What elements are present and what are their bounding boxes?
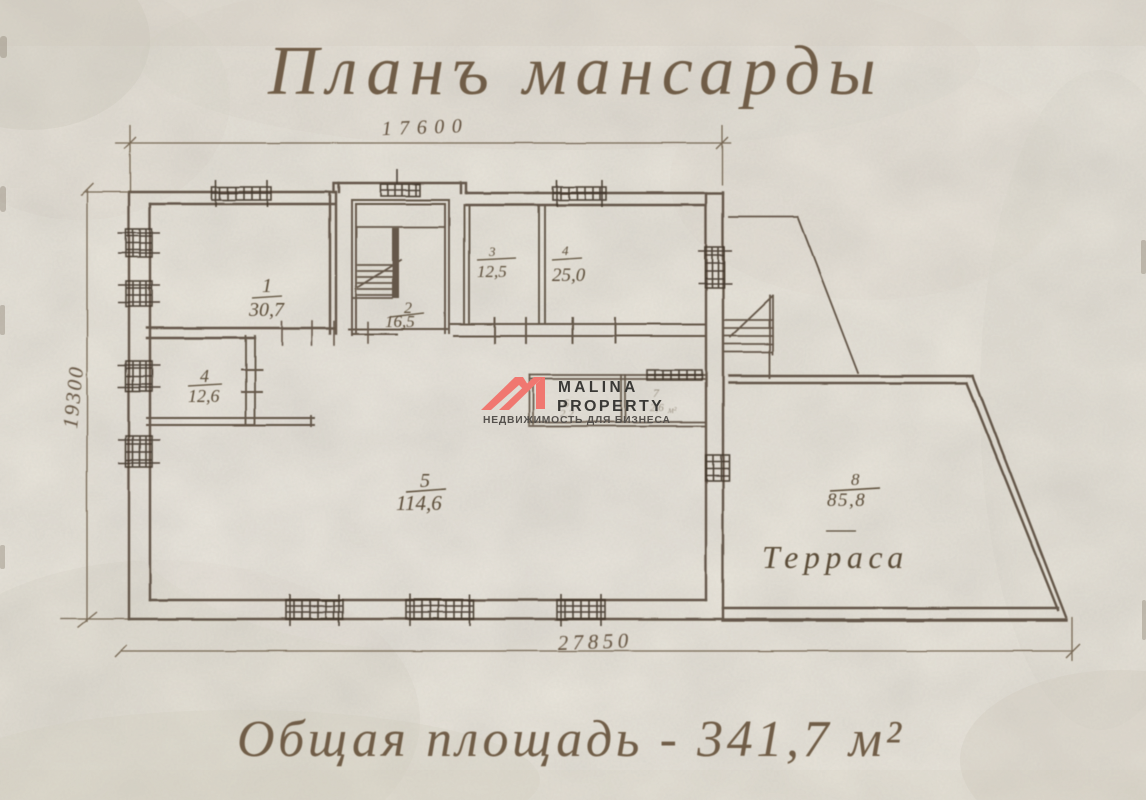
svg-text:1: 1 xyxy=(262,275,272,297)
svg-text:16,5: 16,5 xyxy=(385,312,415,331)
svg-text:85,8: 85,8 xyxy=(827,490,866,511)
svg-text:8: 8 xyxy=(851,470,860,489)
svg-text:12,5: 12,5 xyxy=(477,262,507,281)
svg-text:114,6: 114,6 xyxy=(396,491,442,515)
svg-text:MALINA: MALINA xyxy=(558,379,639,396)
svg-text:м²: м² xyxy=(667,405,677,415)
svg-text:4: 4 xyxy=(200,366,209,386)
svg-text:Планъ мансарды: Планъ мансарды xyxy=(267,33,884,110)
svg-text:27850: 27850 xyxy=(557,628,633,655)
svg-text:4: 4 xyxy=(562,243,569,258)
svg-text:НЕДВИЖИМОСТЬ ДЛЯ БИЗНЕСА: НЕДВИЖИМОСТЬ ДЛЯ БИЗНЕСА xyxy=(483,415,671,426)
svg-text:5: 5 xyxy=(420,470,430,492)
svg-text:PROPERTY: PROPERTY xyxy=(557,398,664,415)
svg-text:Терраса: Терраса xyxy=(762,539,909,575)
svg-text:12,6: 12,6 xyxy=(188,386,220,406)
svg-text:Общая площадь - 341,7 м²: Общая площадь - 341,7 м² xyxy=(237,711,905,768)
svg-text:17600: 17600 xyxy=(381,115,469,140)
svg-text:25,0: 25,0 xyxy=(552,265,586,286)
svg-text:30,7: 30,7 xyxy=(248,299,285,321)
svg-text:3: 3 xyxy=(488,244,496,259)
